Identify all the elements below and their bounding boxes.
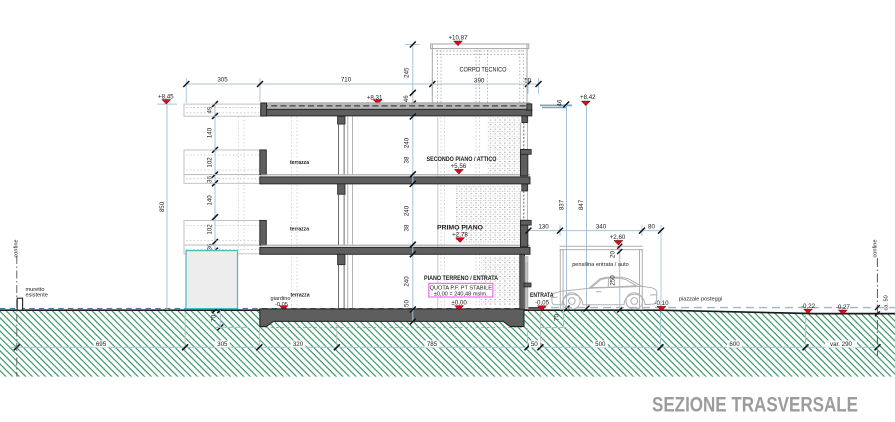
svg-text:piazzale posteggi: piazzale posteggi xyxy=(679,297,722,303)
svg-text:-0,27: -0,27 xyxy=(836,304,851,311)
svg-text:QUOTA P.F. PT STABILE: QUOTA P.F. PT STABILE xyxy=(430,285,493,291)
svg-text:+2,78: +2,78 xyxy=(452,231,468,238)
svg-text:SECONDO PIANO / ATTICO: SECONDO PIANO / ATTICO xyxy=(427,156,497,163)
svg-text:140: 140 xyxy=(206,127,213,138)
svg-text:245: 245 xyxy=(404,67,411,78)
svg-text:+8,42: +8,42 xyxy=(580,94,596,101)
svg-text:46: 46 xyxy=(557,99,564,106)
svg-text:850: 850 xyxy=(159,201,166,212)
svg-text:305: 305 xyxy=(217,341,228,348)
svg-text:terrazza: terrazza xyxy=(290,227,310,233)
svg-text:-0,05: -0,05 xyxy=(535,300,550,307)
svg-text:250: 250 xyxy=(610,275,617,286)
svg-text:-0,22: -0,22 xyxy=(801,303,816,310)
svg-text:80: 80 xyxy=(648,223,655,230)
svg-text:500: 500 xyxy=(595,341,606,348)
svg-text:PIANO TERRENO / ENTRATA: PIANO TERRENO / ENTRATA xyxy=(424,275,498,282)
svg-text:46: 46 xyxy=(403,95,410,102)
svg-text:±0,00: ±0,00 xyxy=(451,299,467,306)
svg-text:+5,56: +5,56 xyxy=(451,163,467,170)
svg-text:confine: confine xyxy=(13,239,19,257)
svg-text:var. 290: var. 290 xyxy=(830,341,853,348)
svg-text:70: 70 xyxy=(554,314,561,321)
svg-text:695: 695 xyxy=(96,341,107,348)
svg-text:305: 305 xyxy=(217,76,228,83)
svg-text:20: 20 xyxy=(610,251,617,258)
svg-text:+2,60: +2,60 xyxy=(610,234,626,241)
svg-text:pensilina entrata / auto: pensilina entrata / auto xyxy=(572,262,629,268)
svg-text:600: 600 xyxy=(729,341,740,348)
svg-text:847: 847 xyxy=(578,199,585,210)
svg-text:36: 36 xyxy=(206,176,213,183)
svg-text:130: 130 xyxy=(538,223,549,230)
svg-text:confine: confine xyxy=(873,239,879,257)
svg-text:785: 785 xyxy=(427,341,438,348)
svg-text:70: 70 xyxy=(210,314,217,321)
svg-text:SEZIONE TRASVERSALE: SEZIONE TRASVERSALE xyxy=(652,393,858,417)
svg-text:240: 240 xyxy=(404,205,411,216)
svg-text:giardino: giardino xyxy=(271,296,291,302)
svg-text:240: 240 xyxy=(404,276,411,287)
svg-text:38: 38 xyxy=(404,224,411,231)
svg-text:terrazza: terrazza xyxy=(290,160,310,166)
svg-text:240: 240 xyxy=(404,137,411,148)
svg-text:CORPO TECNICO: CORPO TECNICO xyxy=(460,67,507,74)
svg-text:-0,10: -0,10 xyxy=(654,300,669,307)
svg-text:+10,87: +10,87 xyxy=(448,35,468,42)
svg-text:50: 50 xyxy=(531,341,538,348)
svg-text:710: 710 xyxy=(341,76,352,83)
svg-text:esistente: esistente xyxy=(26,293,48,299)
svg-text:terrazza: terrazza xyxy=(291,293,311,299)
svg-text:ca. 50: ca. 50 xyxy=(883,295,889,310)
svg-text:140: 140 xyxy=(206,195,213,206)
svg-text:102: 102 xyxy=(206,157,213,168)
svg-text:340: 340 xyxy=(596,223,607,230)
svg-text:837: 837 xyxy=(558,199,565,210)
svg-text:38: 38 xyxy=(404,156,411,163)
svg-text:50: 50 xyxy=(404,300,411,307)
svg-text:ENTRATA: ENTRATA xyxy=(530,292,554,299)
svg-text:320: 320 xyxy=(293,341,304,348)
svg-text:±0,00 = 240,48 mslm.: ±0,00 = 240,48 mslm. xyxy=(434,292,488,298)
svg-text:50: 50 xyxy=(524,77,531,84)
